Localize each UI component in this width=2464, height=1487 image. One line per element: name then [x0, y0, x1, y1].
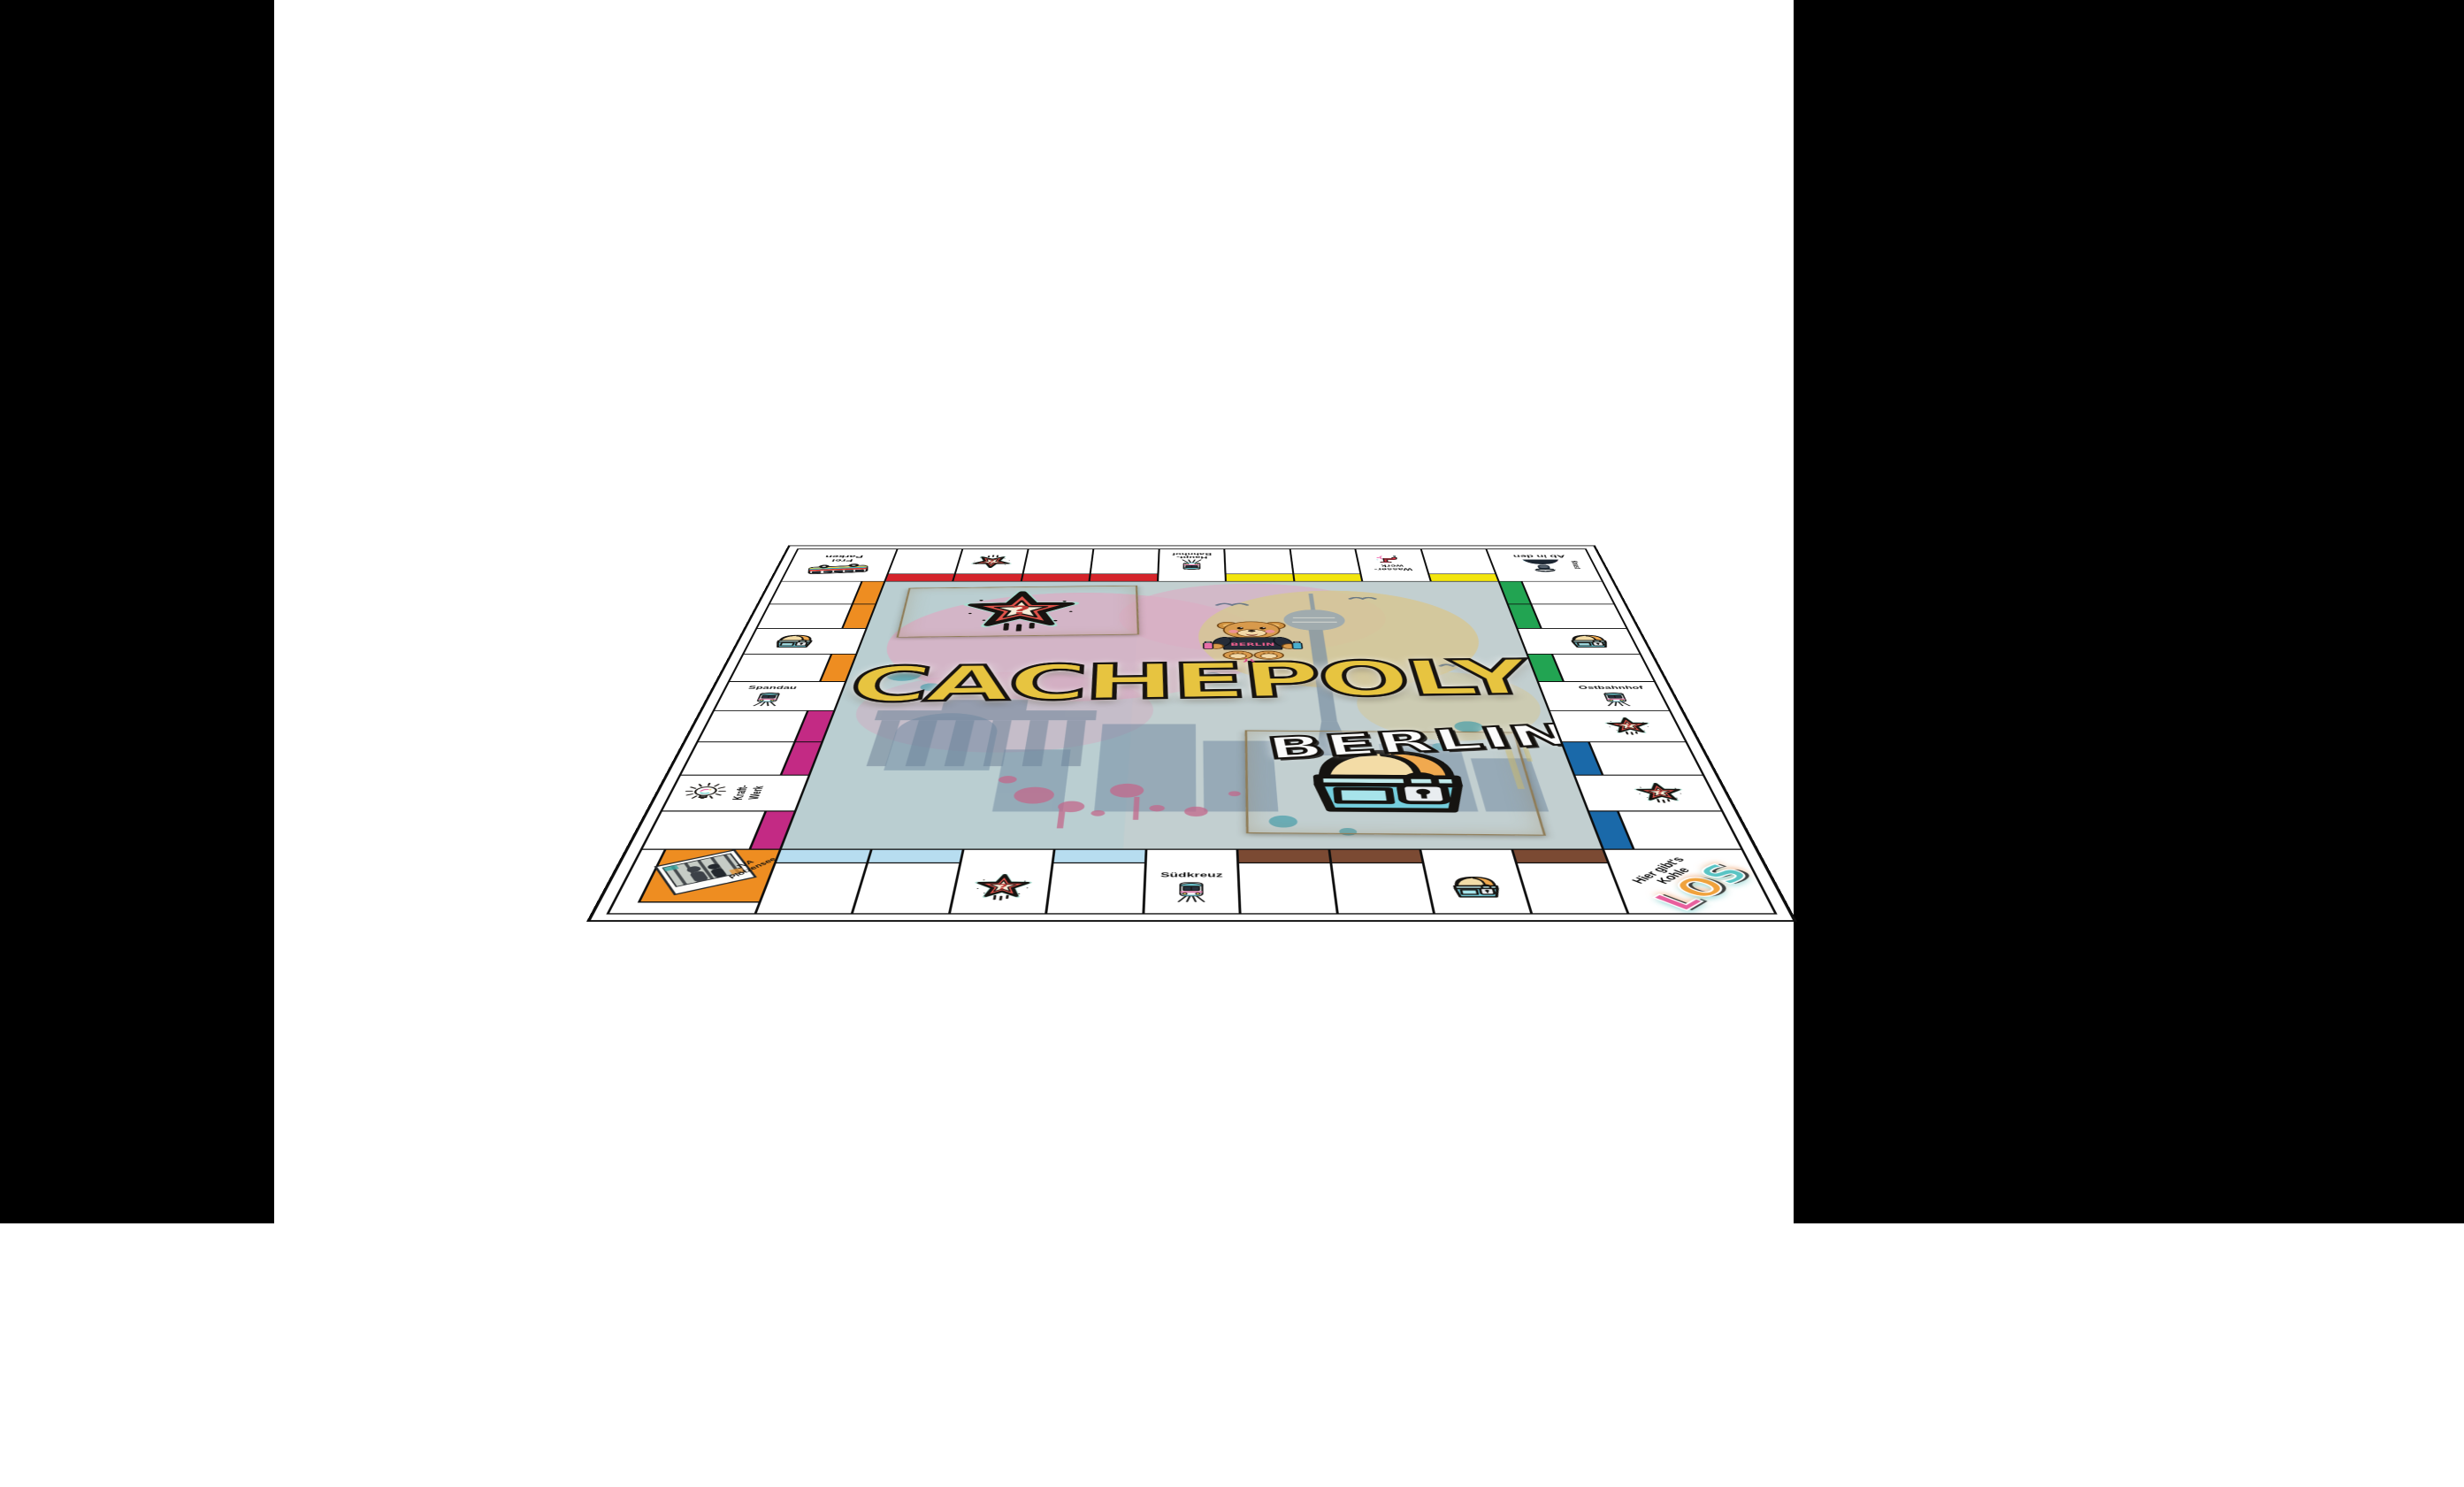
star-card: ?	[896, 586, 1138, 638]
space-yellow-top-9	[1421, 549, 1497, 581]
space-chance-star-right-5: ?	[1550, 711, 1685, 741]
red-color-bar	[1022, 573, 1090, 580]
space-red-top-4	[1090, 549, 1159, 581]
train-icon	[743, 691, 792, 706]
space-chance-star-right-7: ?	[1575, 776, 1720, 810]
board-track: ? CACHEPOLY BERLIN	[606, 548, 1777, 914]
bear-shirt-text: BERLIN	[1230, 642, 1274, 647]
board-center: ? CACHEPOLY BERLIN	[782, 582, 1602, 849]
train-icon	[1167, 880, 1217, 903]
svg-text:?: ?	[1010, 603, 1031, 617]
space-label: Spandau	[747, 686, 798, 690]
page-background: ? CACHEPOLY BERLIN	[0, 0, 2464, 1487]
left-black-panel	[0, 0, 274, 1223]
space-green-right-3	[1528, 655, 1654, 681]
los-corner-content: Hier gibt'sKohleLOS	[1604, 850, 1774, 914]
space-station-ostbahnhof: Ostbahnhof	[1539, 682, 1669, 710]
brown-color-bar	[1239, 850, 1330, 863]
space-treasure-chest-left-2	[745, 629, 866, 654]
lightblue-color-bar	[869, 850, 961, 863]
red-color-bar	[954, 573, 1022, 580]
lightblue-color-bar	[777, 850, 871, 863]
space-station-sdkreuz: Südkreuz	[1144, 850, 1239, 914]
space-label: Ab in den	[1512, 554, 1566, 557]
space-label: Wasser-werk	[1373, 564, 1412, 571]
graffiti-bus-icon	[802, 563, 874, 575]
space-magenta-left-8	[643, 811, 794, 848]
space-label: Kraft-Werk	[730, 786, 767, 801]
space-green-right-0	[1500, 582, 1613, 604]
space-red-top-1	[886, 549, 962, 581]
space-yellow-top-6	[1225, 549, 1293, 581]
light-bulb-icon	[676, 783, 734, 803]
policeman-icon	[1514, 559, 1575, 576]
space-chance-star-bottom-3: ?	[951, 850, 1053, 914]
star-question-icon: ?	[957, 590, 1080, 632]
yellow-color-bar	[1294, 573, 1361, 580]
space-brown-bottom-6	[1239, 850, 1336, 914]
space-label: Haupt-Bahnhof	[1172, 552, 1212, 558]
train-icon	[1174, 559, 1210, 571]
board-title: CACHEPOLY	[843, 654, 1541, 710]
brown-color-bar	[1513, 850, 1608, 863]
space-treasure-chest-right-2	[1519, 629, 1640, 654]
space-orange-left-3	[730, 655, 855, 681]
jail-cell-square: JVAPlötzensee	[638, 850, 778, 902]
space-label: Ostbahnhof	[1578, 686, 1644, 690]
space-blue-right-6	[1563, 742, 1703, 775]
water-tap-icon	[1372, 553, 1410, 563]
lightblue-color-bar	[1054, 850, 1145, 863]
space-lightblue-bottom-2	[853, 850, 961, 914]
space-brown-bottom-7	[1330, 850, 1433, 914]
board-scene: ? CACHEPOLY BERLIN	[586, 0, 1797, 922]
treasure-chest-icon	[1562, 633, 1616, 649]
star-question-icon: ?	[1632, 783, 1690, 803]
space-wasserwerk: Wasser-werk	[1356, 549, 1429, 581]
star-question-icon: ?	[970, 874, 1033, 901]
treasure-chest-icon	[1442, 874, 1510, 901]
space-magenta-left-5	[699, 711, 833, 741]
brown-color-bar	[1330, 850, 1422, 863]
corner-knast: Ab in denKnast	[1487, 549, 1601, 581]
space-chance-star-top-2: ?	[954, 549, 1028, 581]
space-label: Südkreuz	[1160, 872, 1223, 878]
svg-text:?: ?	[997, 883, 1008, 892]
yellow-color-bar	[1227, 573, 1293, 580]
right-black-panel	[1794, 0, 2464, 1223]
corner-los: Hier gibt'sKohleLOS	[1604, 850, 1774, 914]
corner-frei-parken: FreiParken	[782, 549, 896, 581]
space-station-spandau: Spandau	[715, 682, 845, 710]
red-color-bar	[1090, 573, 1157, 580]
space-treasure-chest-bottom-8	[1421, 850, 1529, 914]
space-red-top-3	[1022, 549, 1093, 581]
yellow-color-bar	[1429, 573, 1498, 580]
star-question-icon: ?	[1603, 717, 1657, 735]
svg-text:?: ?	[988, 559, 996, 563]
space-lightblue-bottom-4	[1048, 850, 1145, 914]
star-question-icon: ?	[970, 555, 1014, 568]
space-label: FreiParken	[823, 555, 864, 563]
space-green-right-1	[1509, 604, 1626, 628]
space-station-hauptbahnhof: Haupt-Bahnhof	[1159, 549, 1225, 581]
treasure-chest-icon	[767, 633, 821, 649]
cachepoly-board: ? CACHEPOLY BERLIN	[586, 545, 1797, 922]
red-color-bar	[886, 573, 955, 580]
teddy-bear-mascot: BERLIN	[1198, 616, 1311, 664]
space-blue-right-8	[1589, 811, 1741, 848]
corner-jva: JVAPlötzensee	[609, 850, 779, 914]
space-yellow-top-7	[1290, 549, 1361, 581]
space-magenta-left-6	[681, 742, 821, 775]
space-kraftwerk: Kraft-Werk	[662, 776, 807, 810]
train-icon	[1592, 691, 1641, 706]
space-orange-left-1	[758, 604, 875, 628]
space-orange-left-0	[770, 582, 884, 604]
